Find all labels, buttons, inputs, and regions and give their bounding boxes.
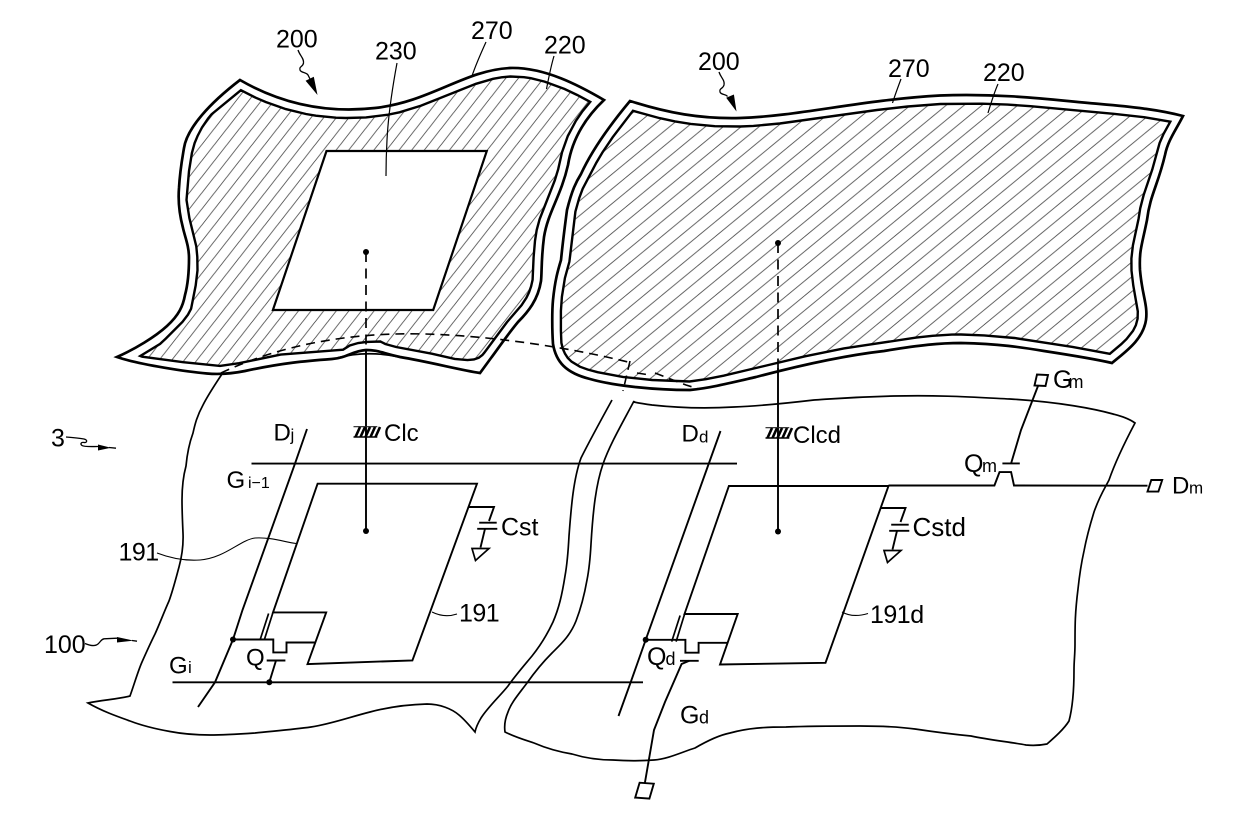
svg-text:270: 270 (471, 17, 513, 45)
svg-text:Q: Q (647, 643, 666, 671)
svg-text:i: i (188, 658, 192, 677)
svg-text:d: d (666, 649, 676, 669)
svg-text:191: 191 (459, 600, 499, 628)
svg-text:G: G (227, 467, 246, 494)
svg-text:191: 191 (119, 539, 159, 567)
svg-text:G: G (169, 653, 188, 680)
svg-text:d: d (699, 428, 708, 447)
svg-text:Clcd: Clcd (793, 422, 841, 449)
svg-text:230: 230 (375, 38, 417, 66)
svg-text:D: D (682, 421, 699, 448)
svg-text:D: D (274, 420, 291, 447)
svg-text:191d: 191d (870, 601, 924, 629)
svg-text:Cst: Cst (501, 514, 539, 542)
svg-text:Q: Q (964, 450, 983, 478)
svg-text:200: 200 (276, 26, 318, 54)
svg-text:m: m (1069, 372, 1084, 392)
svg-text:Q: Q (246, 645, 265, 672)
svg-text:Clc: Clc (384, 420, 419, 447)
svg-text:j: j (290, 426, 295, 445)
svg-text:D: D (1172, 473, 1189, 500)
svg-text:100: 100 (44, 631, 86, 659)
svg-text:m: m (982, 456, 997, 476)
svg-text:3: 3 (51, 425, 65, 453)
svg-text:d: d (699, 708, 709, 728)
svg-text:270: 270 (888, 55, 930, 83)
svg-text:Cstd: Cstd (913, 512, 966, 542)
svg-text:i−1: i−1 (248, 475, 270, 492)
svg-text:220: 220 (544, 32, 586, 60)
svg-text:m: m (1189, 479, 1203, 498)
svg-text:220: 220 (983, 59, 1025, 87)
svg-text:200: 200 (698, 48, 740, 76)
svg-text:G: G (680, 702, 699, 730)
